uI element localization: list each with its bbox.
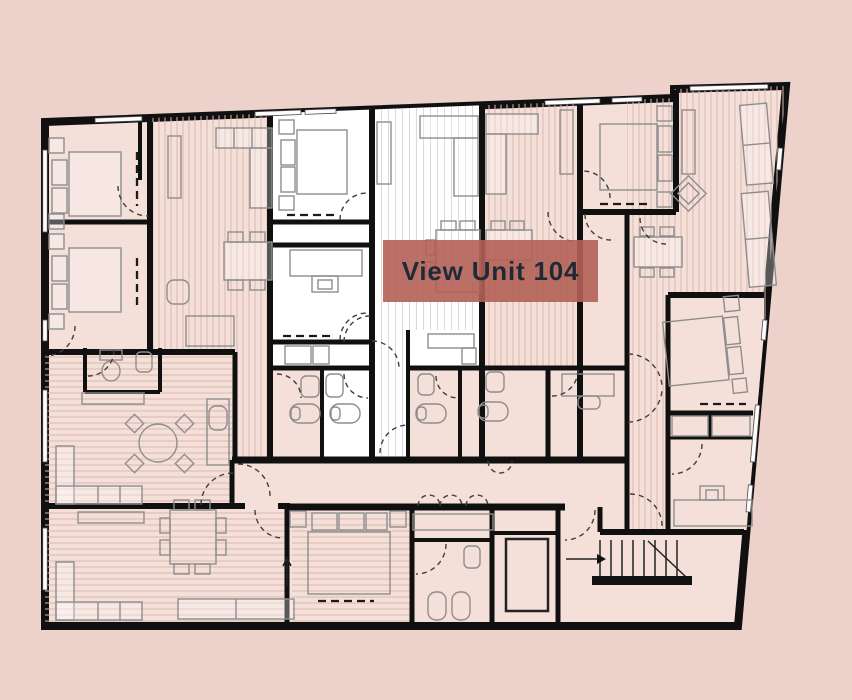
floorplan-viewer: View Unit 104 xyxy=(0,0,852,700)
view-unit-button[interactable]: View Unit 104 xyxy=(383,240,598,302)
bed-symbol xyxy=(49,138,121,229)
floor-plan-svg xyxy=(0,0,852,700)
